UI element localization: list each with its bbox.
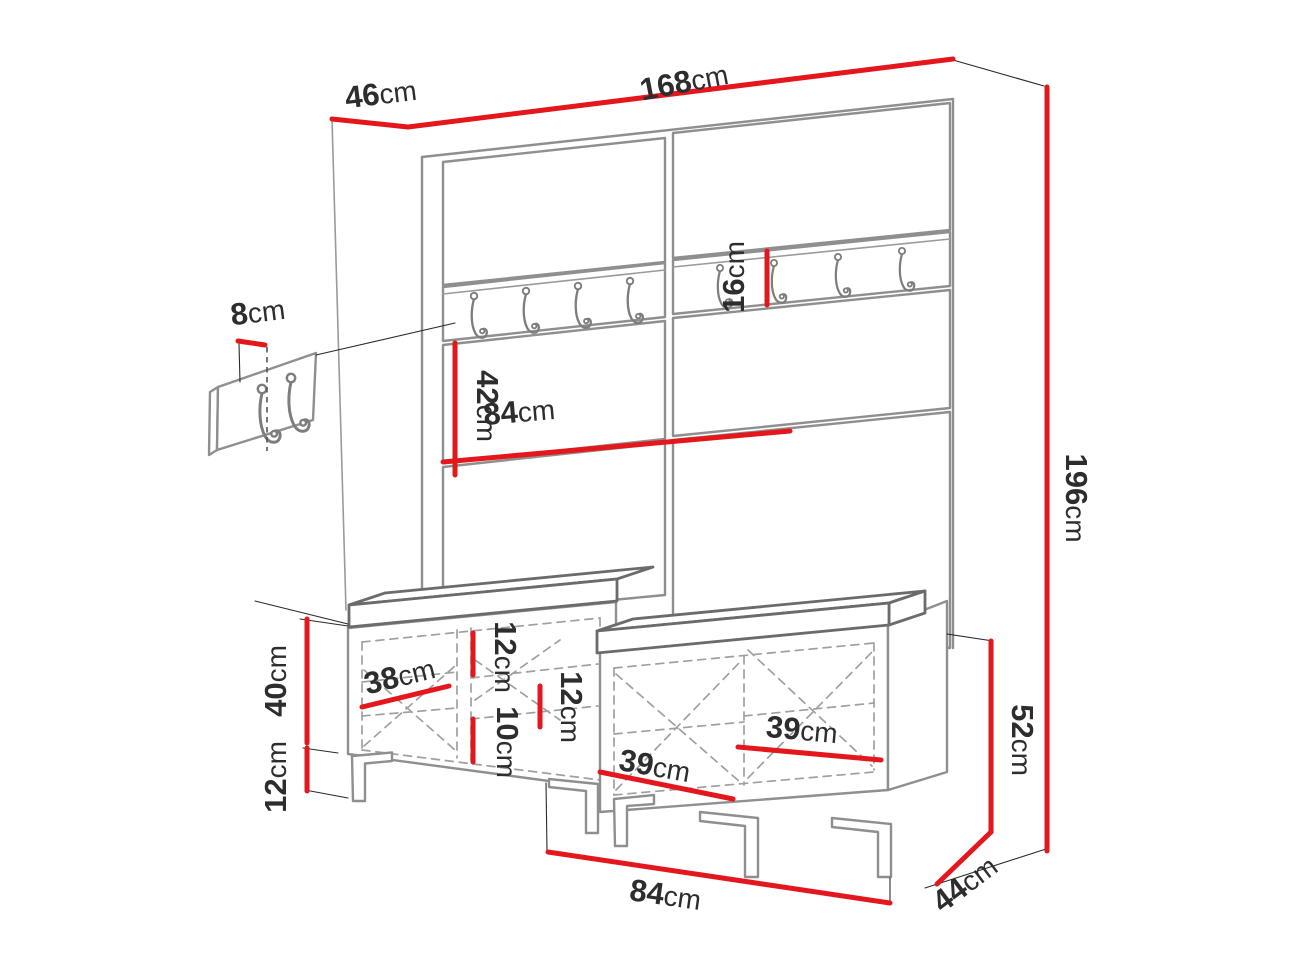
panel-section-top-left — [443, 138, 665, 285]
left-cabinet-left-leg — [352, 753, 392, 802]
dim-label-40cm: 40cm — [258, 645, 293, 717]
panel-left-outer-edge — [332, 119, 346, 610]
dim-label-84cm-bottom: 84cm — [627, 872, 703, 917]
dim-label-46cm: 46cm — [343, 72, 419, 115]
dim-label-8cm: 8cm — [229, 291, 287, 332]
dim-label-196cm: 196cm — [1059, 453, 1094, 542]
dim-label-12cm-gap-b: 12cm — [554, 671, 589, 743]
left-cabinet-right-leg — [549, 779, 598, 833]
panel-section-mid-right — [673, 290, 950, 436]
right-cabinet-side-face — [888, 601, 947, 790]
right-cabinet-left-leg — [614, 795, 654, 846]
diagram-canvas: 168cm 46cm 196cm 8cm 16cm 42cm 84cm 40cm… — [0, 0, 1301, 976]
detail-drop-line — [239, 344, 240, 382]
right-cabinet-right-leg — [832, 818, 891, 877]
detail-leader-line — [316, 323, 455, 355]
dim-label-12cm-gap-a: 12cm — [488, 621, 523, 693]
dim-label-52cm: 52cm — [1005, 704, 1040, 776]
dim-line-bench-width-84 — [548, 852, 890, 903]
dim-label-12cm-leg: 12cm — [258, 741, 293, 813]
right-cabinet-mid-leg — [700, 812, 758, 877]
wall-panel — [332, 59, 953, 648]
dim-label-10cm-gap: 10cm — [490, 706, 525, 778]
dim-line-hook-offset-8 — [238, 341, 265, 345]
dim-label-16cm: 16cm — [716, 241, 751, 313]
furniture-dimension-diagram: 168cm 46cm 196cm 8cm 16cm 42cm 84cm 40cm… — [0, 0, 1301, 976]
